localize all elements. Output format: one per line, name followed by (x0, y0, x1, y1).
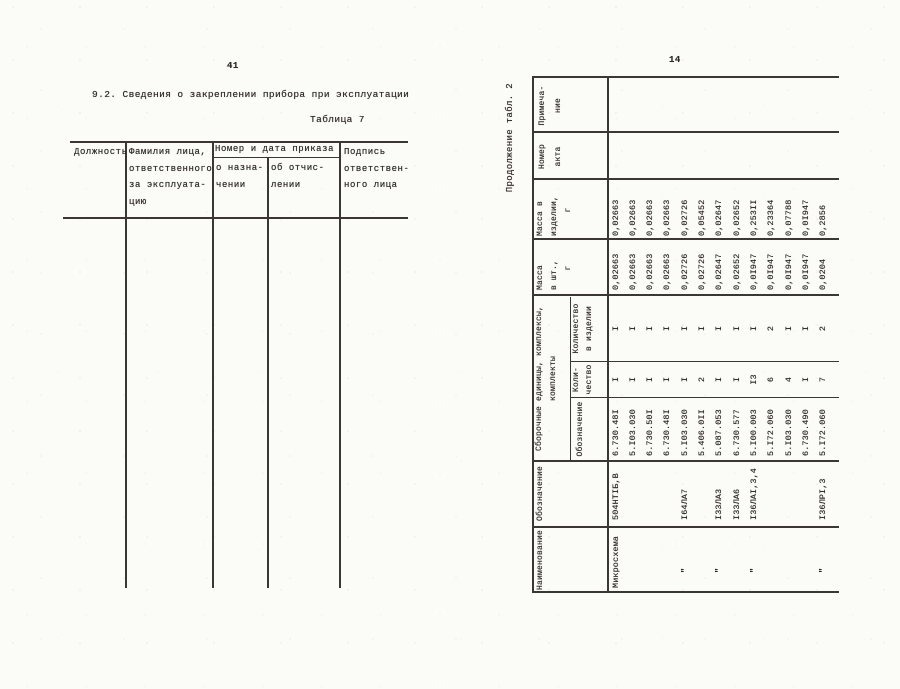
cell-designation: 5.I03.030 (625, 409, 642, 456)
cell-mass-per-unit: 0,02652 (729, 254, 746, 290)
cell-quantity: 6 (763, 362, 780, 397)
cell-mass-in-product: 0,23364 (763, 200, 780, 236)
cell-mass-in-product: 0,02663 (625, 200, 642, 236)
table2-row: 6.730.490II0,0I9470,0I947 (798, 75, 815, 593)
cell-mass-in-product: 0,253II (746, 200, 763, 236)
table2-data-rows: Микросхема504НТIБ,В6.730.48III0,026630,0… (503, 75, 841, 593)
table2-rotated-landscape: Продолжение табл. 2 Наименование Обознач… (503, 75, 841, 593)
scanned-spread: 41 9.2. Сведения о закреплении прибора п… (0, 0, 900, 689)
cell-mass-in-product: 0,02726 (677, 200, 694, 236)
table2-row: "I33ЛА35.087.053II0,026470,02647 (711, 75, 728, 593)
cell-mass-per-unit: 0,0I947 (746, 254, 763, 290)
cell-quantity-in-product: 2 (815, 297, 832, 360)
cell-designation: 6.730.490 (798, 409, 815, 456)
table7-column-line (125, 141, 127, 588)
cell-designation: 6.730.577 (729, 409, 746, 456)
table7-header-appoint: о назна- чении (216, 160, 264, 193)
cell-quantity: I (711, 362, 728, 397)
cell-quantity: I (659, 362, 676, 397)
cell-quantity-in-product: I (729, 297, 746, 360)
cell-mass-in-product: 0,07788 (781, 200, 798, 236)
cell-mass-per-unit: 0,02663 (608, 254, 625, 290)
cell-quantity: I (677, 362, 694, 397)
cell-mass-in-product: 0,02663 (642, 200, 659, 236)
cell-mass-per-unit: 0,02726 (694, 254, 711, 290)
cell-name: " (711, 568, 728, 573)
cell-quantity: I (642, 362, 659, 397)
cell-quantity: 7 (815, 362, 832, 397)
cell-designation: 5.I00.003 (746, 409, 763, 456)
table7-caption: Таблица 7 (310, 114, 365, 125)
table7-header-order-group: Номер и дата приказа (215, 141, 334, 158)
cell-quantity: I3 (746, 362, 763, 397)
cell-name: " (746, 568, 763, 573)
table2-row: "I64ЛА75.I03.030II0,027260,02726 (677, 75, 694, 593)
cell-mass-per-unit: 0,02647 (711, 254, 728, 290)
cell-quantity-in-product: 2 (763, 297, 780, 360)
cell-quantity: 4 (781, 362, 798, 397)
section-title: 9.2. Сведения о закреплении прибора при … (92, 89, 409, 100)
cell-mass-in-product: 0,02663 (608, 200, 625, 236)
cell-designation: 5.087.053 (711, 409, 728, 456)
cell-mass-in-product: 0,0I947 (798, 200, 815, 236)
page-left: 41 9.2. Сведения о закреплении прибора п… (0, 0, 460, 689)
table2-row: "I36ЛАI,3,45.I00.003I3I0,0I9470,253II (746, 75, 763, 593)
cell-type-designation: I36ЛРI,3 (815, 478, 832, 520)
cell-mass-per-unit: 0,0I947 (763, 254, 780, 290)
cell-mass-in-product: 0,02652 (729, 200, 746, 236)
table2-row: 5.406.0II2I0,027260,05452 (694, 75, 711, 593)
table7-header-dismiss: об отчис- лении (271, 160, 325, 193)
cell-mass-in-product: 0,02647 (711, 200, 728, 236)
table7-header-position: Должность (74, 144, 128, 161)
cell-designation: 5.406.0II (694, 409, 711, 456)
cell-quantity-in-product: I (798, 297, 815, 360)
cell-type-designation: I36ЛАI,3,4 (746, 468, 763, 520)
cell-mass-per-unit: 0,0I947 (798, 254, 815, 290)
cell-type-designation: I64ЛА7 (677, 489, 694, 520)
cell-quantity-in-product: I (711, 297, 728, 360)
cell-designation: 5.I03.030 (781, 409, 798, 456)
cell-quantity: I (625, 362, 642, 397)
cell-designation: 5.I72.060 (763, 409, 780, 456)
cell-quantity-in-product: I (746, 297, 763, 360)
cell-type-designation: I33ЛА3 (711, 489, 728, 520)
cell-mass-per-unit: 0,0204 (815, 259, 832, 290)
cell-mass-in-product: 0,2856 (815, 205, 832, 236)
table7-header-person: Фамилия лица, ответственного за эксплуат… (129, 144, 212, 210)
cell-designation: 5.I72.060 (815, 409, 832, 456)
cell-quantity-in-product: I (642, 297, 659, 360)
table7-column-line (267, 157, 269, 588)
cell-quantity-in-product: I (659, 297, 676, 360)
table7-header-separator (63, 217, 408, 219)
cell-quantity-in-product: I (677, 297, 694, 360)
cell-quantity-in-product: I (694, 297, 711, 360)
cell-name: " (815, 568, 832, 573)
cell-quantity: I (798, 362, 815, 397)
cell-quantity-in-product: I (625, 297, 642, 360)
cell-designation: 6.730.50I (642, 409, 659, 456)
cell-quantity: I (608, 362, 625, 397)
cell-type-designation: I33ЛА6 (729, 489, 746, 520)
cell-quantity: I (729, 362, 746, 397)
cell-mass-per-unit: 0,02726 (677, 254, 694, 290)
table2-row: 5.I03.0304I0,0I9470,07788 (781, 75, 798, 593)
cell-quantity-in-product: I (781, 297, 798, 360)
cell-name: Микросхема (608, 536, 625, 588)
table7-column-line (339, 141, 341, 588)
table2-row: 6.730.50III0,026630,02663 (642, 75, 659, 593)
table2-row: 6.730.48III0,026630,02663 (659, 75, 676, 593)
cell-mass-in-product: 0,05452 (694, 200, 711, 236)
cell-type-designation: 504НТIБ,В (608, 473, 625, 520)
cell-mass-per-unit: 0,0I947 (781, 254, 798, 290)
page-number-right: 14 (669, 55, 681, 65)
cell-mass-per-unit: 0,02663 (625, 254, 642, 290)
cell-designation: 5.I03.030 (677, 409, 694, 456)
table2-row: 5.I72.060620,0I9470,23364 (763, 75, 780, 593)
table2-row: Микросхема504НТIБ,В6.730.48III0,026630,0… (608, 75, 625, 593)
table2-row: 5.I03.030II0,026630,02663 (625, 75, 642, 593)
cell-quantity-in-product: I (608, 297, 625, 360)
table2-row: "I36ЛРI,35.I72.060720,02040,2856 (815, 75, 832, 593)
table7-header-signature: Подпись ответствен- ного лица (344, 144, 409, 194)
cell-mass-per-unit: 0,02663 (642, 254, 659, 290)
cell-quantity: 2 (694, 362, 711, 397)
cell-mass-in-product: 0,02663 (659, 200, 676, 236)
page-number-left: 41 (227, 61, 239, 71)
cell-designation: 6.730.48I (659, 409, 676, 456)
cell-name: " (677, 568, 694, 573)
table2-row: I33ЛА66.730.577II0,026520,02652 (729, 75, 746, 593)
cell-mass-per-unit: 0,02663 (659, 254, 676, 290)
cell-designation: 6.730.48I (608, 409, 625, 456)
